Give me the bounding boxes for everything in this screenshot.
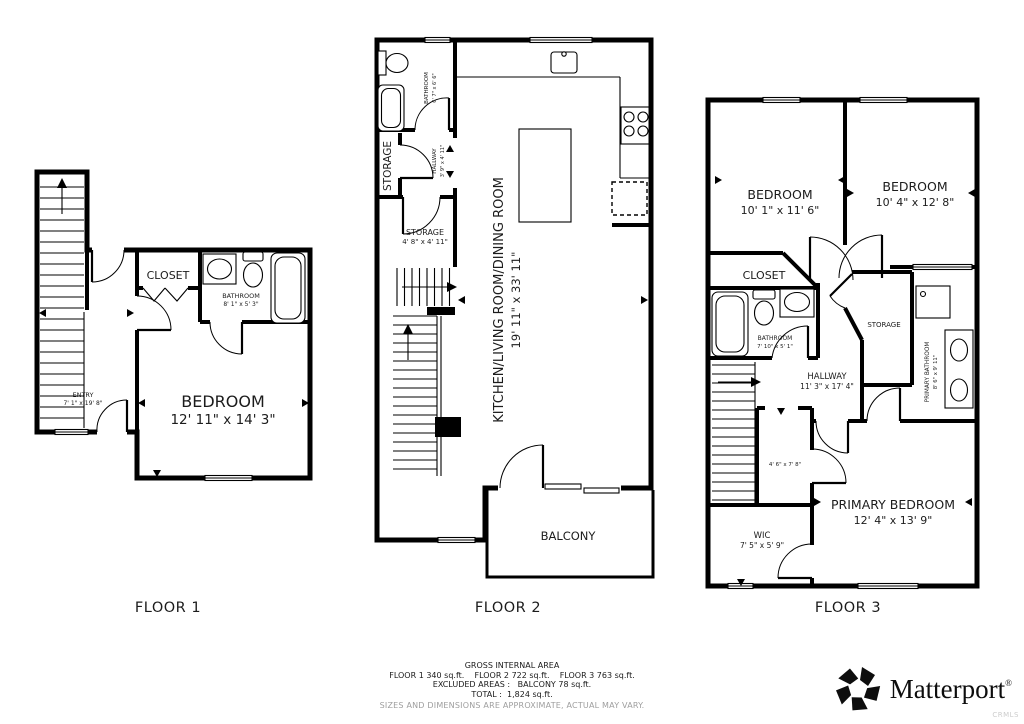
room-dims-wic: 7' 5" x 5' 9": [740, 541, 784, 550]
matterport-logo-icon: [835, 666, 881, 712]
door: [210, 322, 242, 354]
room-label-bedroom-left: BEDROOM: [747, 187, 812, 202]
window: [763, 97, 800, 104]
room-label-hallway: HALLWAY: [432, 148, 438, 174]
staircase: [712, 362, 761, 505]
floor-3-interior-walls: [710, 100, 977, 586]
room-label-hallway: HALLWAY: [807, 372, 847, 382]
opening-markers: [446, 145, 454, 178]
door: [830, 274, 852, 308]
room-label-wic: WIC: [754, 531, 771, 541]
floor-3-label: FLOOR 3: [815, 600, 881, 616]
bifold-closet-doors: [143, 288, 188, 301]
window: [438, 537, 475, 544]
open-below-dashed: [612, 182, 647, 215]
stair-direction-arrow: [57, 178, 67, 188]
stair-direction-arrow: [751, 377, 761, 387]
floorplan-page: CLOSET BATHROOM 8' 1" x 5' 3" BEDROOM 12…: [0, 0, 1024, 724]
door: [812, 449, 846, 483]
bathtub-icon: [271, 253, 305, 323]
sink-icon: [203, 254, 236, 284]
room-label-storage-lower: STORAGE: [406, 228, 444, 237]
door: [867, 388, 900, 421]
window: [205, 475, 252, 482]
shower-icon: [916, 286, 950, 318]
kitchen-island: [519, 129, 571, 222]
room-label-balcony: BALCONY: [541, 529, 597, 543]
room-dims-storage-lower: 4' 8" x 4' 11": [402, 238, 448, 246]
room-dims-entry: 7' 1" x 19' 8": [63, 400, 102, 407]
dimension-arrows: [458, 296, 648, 304]
toilet-icon: [753, 290, 775, 325]
room-label-primary-bathroom: PRIMARY BATHROOM: [925, 342, 931, 403]
staircase: [393, 268, 461, 476]
room-label-kitchen-living-dining: KITCHEN/LIVING ROOM/DINING ROOM: [492, 177, 507, 423]
floor-2-label: FLOOR 2: [475, 600, 541, 616]
room-dims-bathroom: 8' 1" x 5' 3": [223, 301, 259, 308]
room-label-bathroom: BATHROOM: [424, 72, 430, 104]
door: [816, 421, 848, 453]
matterport-branding: Matterport®: [835, 666, 1012, 712]
floor-1-label: FLOOR 1: [135, 600, 201, 616]
floor-2-plan: BATHROOM 6' 7" x 6' 6" STORAGE HALLWAY 3…: [377, 37, 653, 617]
room-dims-bathroom: 6' 7" x 6' 6": [432, 73, 438, 102]
room-dims-closet-small: 4' 6" x 7' 8": [769, 462, 801, 468]
room-label-closet: CLOSET: [147, 269, 190, 282]
room-dims-primary-bedroom: 12' 4" x 13' 9": [854, 514, 933, 527]
room-label-closet: CLOSET: [743, 269, 786, 282]
window: [858, 583, 918, 590]
toilet-icon: [243, 252, 263, 287]
opening-marker: [777, 408, 785, 415]
room-dims-primary-bathroom: 8' 6" x 9' 11": [933, 355, 939, 390]
sink-icon: [780, 289, 814, 317]
room-label-entry: ENTRY: [72, 391, 93, 399]
window: [425, 37, 450, 44]
room-dims-bedroom: 12' 11" x 14' 3": [170, 412, 275, 428]
floor-1-plan: CLOSET BATHROOM 8' 1" x 5' 3" BEDROOM 12…: [37, 172, 310, 616]
room-dims-hallway: 3' 9" x 4' 11": [440, 145, 446, 178]
stair-direction-arrow: [447, 282, 457, 292]
window: [860, 97, 907, 104]
window: [55, 429, 88, 436]
toilet-icon: [378, 51, 408, 75]
window: [530, 37, 592, 44]
bathtub-icon: [712, 292, 748, 356]
floorplan-svg: CLOSET BATHROOM 8' 1" x 5' 3" BEDROOM 12…: [0, 0, 1024, 724]
window: [913, 264, 972, 271]
door: [400, 145, 433, 178]
bathtub-icon: [378, 85, 404, 131]
room-dims-hallway: 11' 3" x 17' 4": [800, 382, 854, 391]
room-label-primary-bedroom: PRIMARY BEDROOM: [831, 497, 955, 512]
room-label-storage-upper: STORAGE: [382, 141, 394, 191]
crmls-watermark: CRMLS: [992, 711, 1019, 719]
room-label-bedroom: BEDROOM: [181, 392, 265, 411]
floor-3-plan: BEDROOM 10' 1" x 11' 6" BEDROOM 10' 4" x…: [708, 97, 977, 617]
matterport-wordmark: Matterport®: [890, 674, 1012, 705]
room-label-bathroom: BATHROOM: [758, 335, 793, 342]
stove-icon: [621, 107, 651, 144]
room-label-bathroom: BATHROOM: [222, 292, 260, 300]
registered-trademark: ®: [1005, 678, 1012, 688]
door: [92, 246, 124, 282]
double-sink-icon: [945, 330, 973, 408]
room-label-storage: STORAGE: [867, 321, 900, 329]
room-dims-kitchen-living-dining: 19' 11" x 33' 11": [509, 252, 523, 349]
balcony-door: [498, 445, 621, 493]
kitchen-counter: [455, 52, 651, 222]
room-dims-bedroom-right: 10' 4" x 12' 8": [876, 196, 955, 209]
room-label-bedroom-right: BEDROOM: [882, 179, 947, 194]
room-dims-bedroom-left: 10' 1" x 11' 6": [741, 204, 820, 217]
room-dims-bathroom: 7' 10" x 5' 1": [757, 344, 793, 350]
